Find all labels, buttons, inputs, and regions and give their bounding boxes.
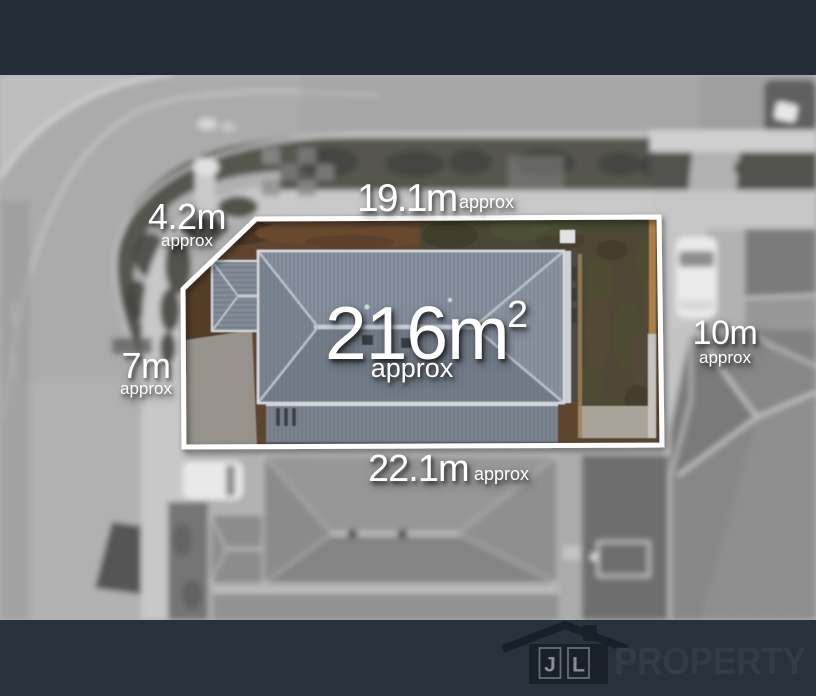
svg-text:PROPERTY: PROPERTY [614,641,806,683]
svg-text:L: L [572,654,585,677]
svg-text:J: J [544,654,556,677]
